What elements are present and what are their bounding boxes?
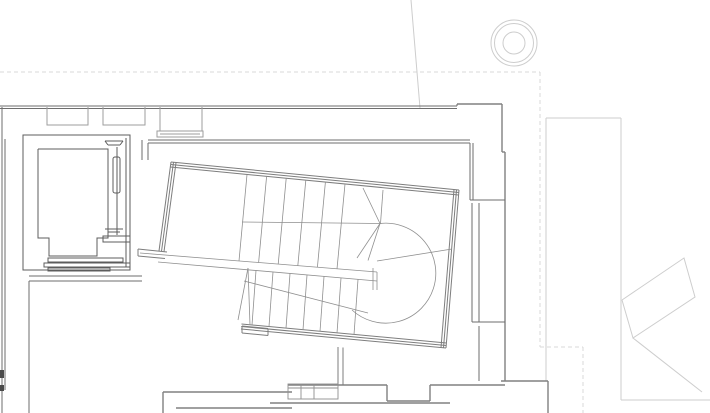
window-niches	[47, 107, 203, 137]
stair-enclosure-walls	[138, 162, 459, 385]
outer-walls	[163, 104, 548, 413]
threshold-detail	[288, 384, 338, 399]
elevator-shaft	[23, 135, 130, 271]
stair-treads-and-rails	[140, 175, 452, 335]
plan-svg	[0, 0, 710, 413]
dashed-reference-lines	[0, 72, 583, 413]
floor-plan	[0, 0, 710, 413]
